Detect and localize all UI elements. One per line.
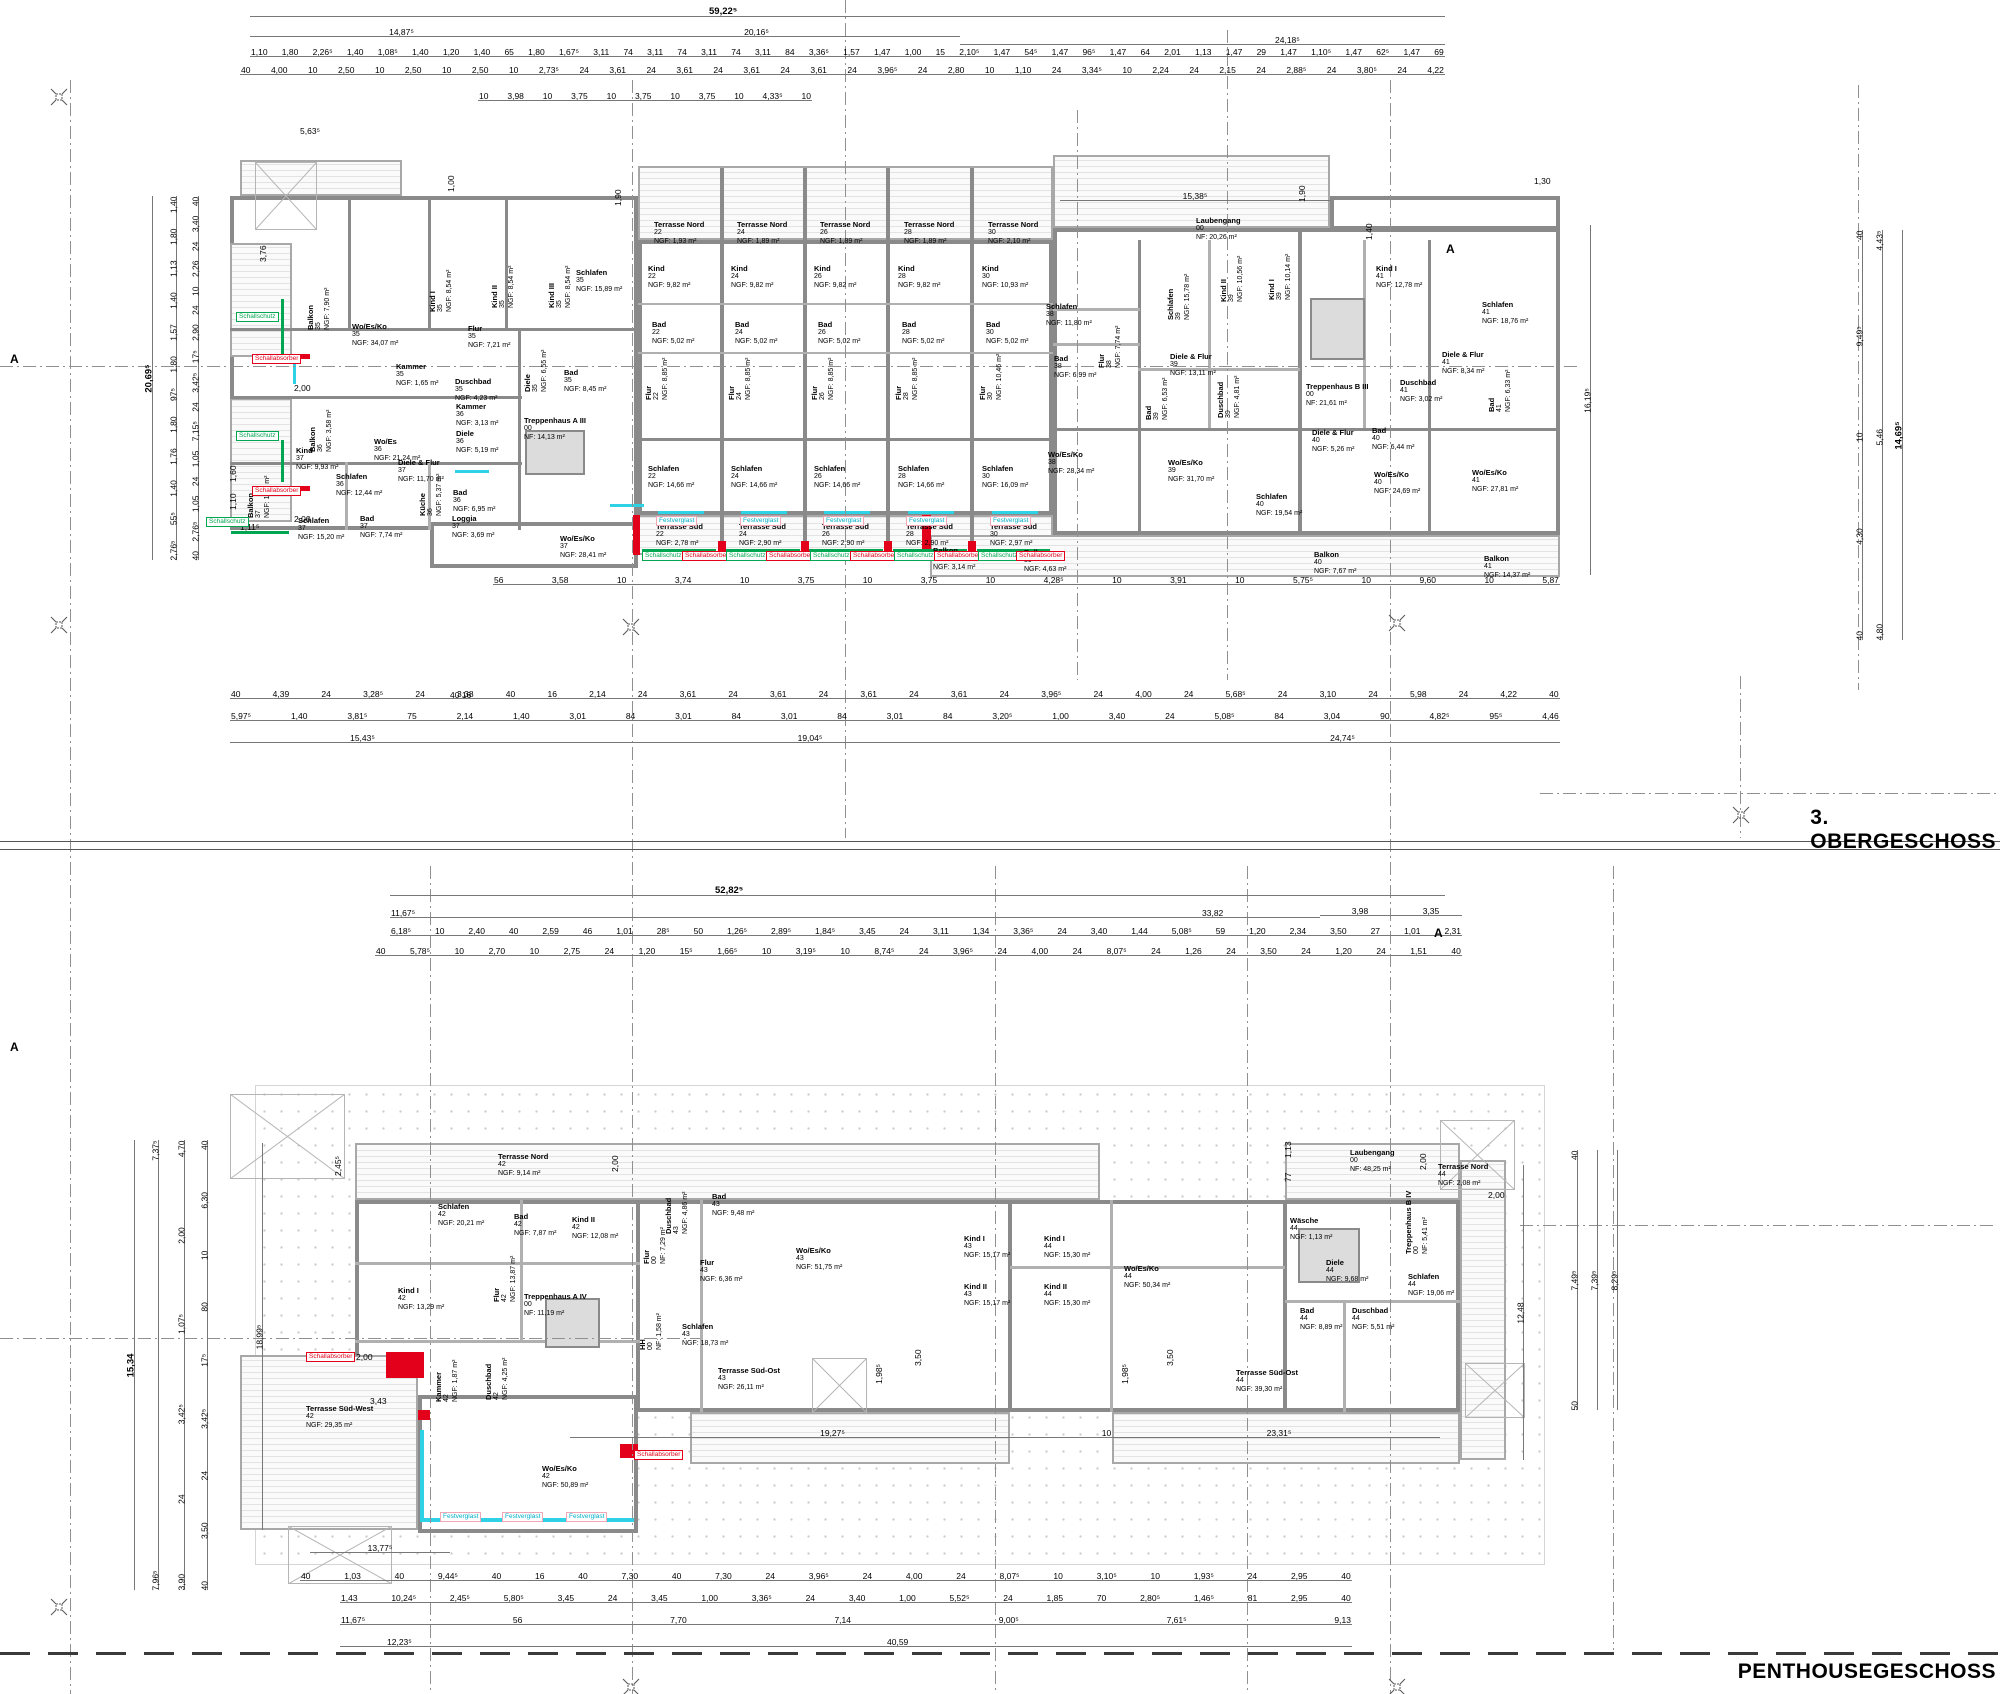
room-area: NGF: 13,87 m² — [510, 1256, 519, 1302]
unit-number: 22 — [648, 473, 694, 482]
dim-label: 2,00 — [1488, 1190, 1505, 1200]
crosshair-marker-icon — [50, 88, 68, 106]
room-name: Wo/Es/Ko — [1472, 468, 1518, 477]
unit-number: 24 — [731, 473, 777, 482]
room-area: NGF: 10,46 m² — [996, 354, 1005, 400]
room-area: NGF: 51,75 m² — [796, 1264, 842, 1273]
room-area: NGF: 7,67 m² — [1314, 568, 1356, 577]
unit-number: 43 — [796, 1255, 842, 1264]
dim-chain: 20,16⁵ — [553, 25, 960, 37]
festverglast-window-segment — [610, 504, 644, 507]
unit-number: 36 — [453, 497, 495, 506]
room-name: Kind II — [572, 1215, 618, 1224]
room-area: NGF: 2,10 m² — [988, 238, 1038, 247]
interior-wall — [886, 168, 890, 555]
room-name: Bad — [514, 1212, 556, 1221]
floor2-title: PENTHOUSEGESCHOSS — [1738, 1660, 1996, 1684]
unit-number: 40 — [1314, 559, 1356, 568]
room-name: Flur — [642, 1227, 651, 1264]
ref-line-horizontal — [0, 1338, 700, 1339]
room-label: Kind I39NGF: 10,14 m² — [1267, 254, 1294, 300]
room-label: Duschbad42NGF: 4,25 m² — [484, 1358, 511, 1400]
tag-schallschutz: Schallschutz — [236, 312, 279, 322]
tag-schallabsorber: Schallabsorber — [934, 551, 983, 561]
interior-wall — [700, 1200, 703, 1412]
room-name: Bad — [1487, 370, 1496, 412]
room-name: Wo/Es/Ko — [1124, 1264, 1170, 1273]
terrace-deck — [690, 1412, 1010, 1464]
stair-core — [1310, 298, 1365, 360]
room-area: NF: 5,41 m² — [1422, 1191, 1431, 1254]
room-area: NGF: 5,02 m² — [902, 338, 944, 347]
room-label: Schlafen37NGF: 15,20 m² — [298, 516, 344, 543]
tag-schallschutz: Schallschutz — [642, 551, 685, 561]
dim-chain: 3,98 — [1320, 904, 1400, 916]
room-name: Terrasse Süd-Ost — [1236, 1368, 1298, 1377]
tag-schallschutz: Schallschutz — [726, 551, 769, 561]
room-name: Terrasse Süd-West — [306, 1404, 373, 1413]
room-label: Schlafen28NGF: 14,66 m² — [898, 464, 944, 491]
unit-number: 24 — [739, 531, 786, 540]
room-name: Laubengang — [1350, 1148, 1395, 1157]
room-label: Treppenhaus A IV00NF: 11,19 m² — [524, 1292, 587, 1319]
room-area: NF: 20,26 m² — [1196, 234, 1241, 243]
dim-chain: 59,22⁵ — [250, 5, 1445, 17]
room-label: Kind I43NGF: 15,17 m² — [964, 1234, 1010, 1261]
room-area: NGF: 6,33 m² — [1505, 370, 1514, 412]
room-area: NGF: 3,13 m² — [456, 420, 498, 429]
room-label: Terrasse Süd-West42NGF: 29,35 m² — [306, 1404, 373, 1431]
room-area: NGF: 3,02 m² — [1400, 396, 1442, 405]
room-name: Diele & Flur — [1170, 352, 1216, 361]
room-label: HH00NF: 1,58 m² — [638, 1313, 665, 1350]
room-name: Terrasse Nord — [904, 220, 954, 229]
interior-wall — [348, 196, 351, 330]
tag-festverglast: Festverglast — [440, 1512, 481, 1522]
unit-number: 35 — [352, 331, 398, 340]
room-name: Diele — [523, 350, 532, 392]
room-name: Wo/Es/Ko — [1048, 450, 1094, 459]
room-name: Schlafen — [438, 1202, 484, 1211]
room-label: Schlafen38NGF: 11,80 m² — [1046, 302, 1092, 329]
dim-chain: 1,4310,24⁵2,45⁵5,80⁵3,45243,451,003,36⁵2… — [340, 1591, 1352, 1603]
room-name: Balkon — [1314, 550, 1356, 559]
room-label: Bad42NGF: 7,87 m² — [514, 1212, 556, 1239]
room-name: Flur — [810, 358, 819, 400]
dim-chain-vertical: 402,76⁵1,05241,057,15⁵243,42⁵17⁵2,902410… — [198, 196, 199, 560]
room-area: NGF: 11,80 m² — [1046, 320, 1092, 329]
room-label: Kind I41NGF: 12,78 m² — [1376, 264, 1422, 291]
room-name: Diele & Flur — [398, 458, 444, 467]
unit-number: 30 — [987, 354, 996, 400]
unit-number: 42 — [398, 1295, 444, 1304]
unit-number: 37 — [298, 525, 344, 534]
room-name: Kammer — [434, 1360, 443, 1402]
unit-number: 42 — [542, 1473, 588, 1482]
room-area: NGF: 8,54 m² — [565, 266, 574, 308]
room-name: Bad — [360, 514, 402, 523]
tag-schallschutz: Schallschutz — [206, 517, 249, 527]
dim-chain: 19,04⁵ — [495, 731, 1125, 743]
room-area: NGF: 16,09 m² — [982, 482, 1028, 491]
room-name: Kind II — [964, 1282, 1010, 1291]
unit-number: 44 — [1044, 1291, 1090, 1300]
room-name: Kind I — [428, 270, 437, 312]
room-area: NGF: 15,17 m² — [964, 1300, 1010, 1309]
dim-chain-vertical: 20,69⁵ — [152, 196, 153, 560]
room-label: Flur42NGF: 13,87 m² — [492, 1256, 519, 1302]
festverglast-window-segment — [741, 511, 787, 514]
room-name: Bad — [986, 320, 1028, 329]
room-label: Diele & Flur39NGF: 13,11 m² — [1170, 352, 1216, 379]
room-name: Treppenhaus B III — [1306, 382, 1369, 391]
room-label: Terrasse Süd-Ost44NGF: 39,30 m² — [1236, 1368, 1298, 1395]
room-area: NGF: 4,63 m² — [1024, 566, 1066, 575]
tag-schallabsorber: Schallabsorber — [682, 551, 731, 561]
unit-number: 44 — [1438, 1171, 1488, 1180]
room-label: Terrasse Nord44NGF: 2,08 m² — [1438, 1162, 1488, 1189]
room-name: Kind I — [1376, 264, 1422, 273]
room-area: NGF: 8,89 m² — [1300, 1324, 1342, 1333]
room-label: Balkon40NGF: 7,67 m² — [1314, 550, 1356, 577]
room-name: Bad — [1372, 426, 1414, 435]
room-name: Diele — [456, 429, 498, 438]
room-area: NGF: 8,85 m² — [912, 358, 921, 400]
room-area: NGF: 15,78 m² — [1184, 274, 1193, 320]
dim-label: 2,00 — [1418, 1153, 1428, 1170]
dim-chain: 6,18⁵102,40402,59461,0128⁵501,26⁵2,89⁵1,… — [390, 924, 1462, 936]
crosshair-marker-icon — [622, 618, 640, 636]
dim-chain: 23,31⁵ — [1118, 1426, 1440, 1438]
unit-number: 28 — [902, 329, 944, 338]
room-area: NGF: 14,37 m² — [1484, 572, 1530, 581]
dim-chain: 103,98103,75103,75103,75104,33⁵10 — [478, 89, 812, 101]
dim-chain: 11,67⁵567,707,149,00⁵7,61⁵9,13 — [340, 1613, 1352, 1625]
dim-chain-vertical: 4,805,464,43⁵ — [1882, 230, 1883, 640]
unit-number: 00 — [1413, 1191, 1422, 1254]
room-area: NGF: 50,34 m² — [1124, 1282, 1170, 1291]
unit-number: 41 — [1376, 273, 1422, 282]
room-label: Diele35NGF: 6,55 m² — [523, 350, 550, 392]
room-name: Bad — [712, 1192, 754, 1201]
sheet-divider-line — [0, 841, 2000, 842]
room-label: Balkon37NGF: 1,50 m² — [246, 476, 273, 518]
interior-wall — [1138, 240, 1141, 535]
room-name: Schlafen — [898, 464, 944, 473]
room-label: Bad22NGF: 5,02 m² — [652, 320, 694, 347]
room-label: Schlafen40NGF: 19,54 m² — [1256, 492, 1302, 519]
dim-label: 1,98⁵ — [874, 1364, 884, 1384]
room-area: NGF: 5,26 m² — [1312, 446, 1354, 455]
dim-label: 2,00 — [356, 1352, 373, 1362]
unit-number: 42 — [443, 1360, 452, 1402]
room-name: Schlafen — [298, 516, 344, 525]
dim-chain: 24,74⁵ — [1125, 731, 1560, 743]
unit-number: 30 — [988, 229, 1038, 238]
room-name: Kind — [648, 264, 690, 273]
room-label: Kind I42NGF: 13,29 m² — [398, 1286, 444, 1313]
dim-chain-vertical: 12,48 — [1523, 1165, 1524, 1460]
room-label: Terrasse Nord24NGF: 1,89 m² — [737, 220, 787, 247]
unit-number: 37 — [398, 467, 444, 476]
tag-schallabsorber: Schallabsorber — [1016, 551, 1065, 561]
unit-number: 35 — [396, 371, 438, 380]
unit-number: 26 — [818, 329, 860, 338]
room-name: Terrasse Nord — [820, 220, 870, 229]
room-area: NF: 11,19 m² — [524, 1310, 587, 1319]
unit-number: 38 — [1048, 459, 1094, 468]
unit-number: 35 — [437, 270, 446, 312]
room-name: Duschbad — [455, 377, 497, 386]
unit-number: 42 — [498, 1161, 548, 1170]
room-name: Diele & Flur — [1442, 350, 1484, 359]
room-area: NGF: 9,48 m² — [712, 1210, 754, 1219]
crosshair-marker-icon — [50, 1598, 68, 1616]
unit-number: 35 — [532, 350, 541, 392]
sheet-divider-line — [0, 849, 2000, 850]
dim-label: 1,13 — [1283, 1141, 1293, 1158]
unit-number: 42 — [572, 1224, 618, 1233]
section-marker-a: A — [10, 1040, 19, 1054]
room-label: Terrasse Nord30NGF: 2,10 m² — [988, 220, 1038, 247]
room-label: Balkon35NGF: 7,90 m² — [306, 288, 333, 330]
interior-wall — [518, 330, 521, 530]
room-label: Flur43NGF: 6,36 m² — [700, 1258, 742, 1285]
unit-number: 41 — [1484, 563, 1530, 572]
interior-wall — [1138, 368, 1300, 371]
room-label: Kind I44NGF: 15,30 m² — [1044, 1234, 1090, 1261]
room-name: Terrasse Nord — [988, 220, 1038, 229]
unit-number: 37 — [255, 476, 264, 518]
room-label: Kammer42NGF: 1,87 m² — [434, 1360, 461, 1402]
room-label: Bad40NGF: 6,44 m² — [1372, 426, 1414, 453]
room-name: Schlafen — [1166, 274, 1175, 320]
room-name: Schlafen — [682, 1322, 728, 1331]
room-name: Kammer — [396, 362, 438, 371]
room-area: NF: 14,13 m² — [524, 434, 586, 443]
unit-number: 36 — [456, 438, 498, 447]
sheet-divider-dashed — [0, 1652, 2000, 1655]
dim-chain: 10 — [1095, 1426, 1118, 1438]
room-area: NGF: 10,93 m² — [982, 282, 1028, 291]
room-area: NGF: 14,66 m² — [814, 482, 860, 491]
room-area: NGF: 1,93 m² — [654, 238, 704, 247]
unit-number: 42 — [514, 1221, 556, 1230]
crosshair-marker-icon — [1388, 614, 1406, 632]
room-name: Schlafen — [814, 464, 860, 473]
unit-number: 39 — [1168, 467, 1214, 476]
tag-schallabsorber: Schallabsorber — [634, 1450, 683, 1460]
room-area: NGF: 18,73 m² — [682, 1340, 728, 1349]
schallabsorber-wall-segment — [418, 1410, 430, 1420]
unit-number: 30 — [990, 531, 1037, 540]
room-name: Bad — [652, 320, 694, 329]
room-name: Wo/Es/Ko — [542, 1464, 588, 1473]
tag-schallschutz: Schallschutz — [978, 551, 1021, 561]
unit-number: 44 — [1408, 1281, 1454, 1290]
festverglast-window-segment — [992, 511, 1038, 514]
unit-number: 22 — [656, 531, 703, 540]
unit-number: 00 — [1306, 391, 1369, 400]
room-name: Kind II — [1044, 1282, 1090, 1291]
festverglast-window-segment — [293, 364, 296, 384]
crosshair-marker-icon — [622, 1678, 640, 1694]
room-label: Kind II39NGF: 10,56 m² — [1219, 256, 1246, 302]
room-name: Duschbad — [1216, 376, 1225, 418]
dim-chain-vertical: 404,30109,49⁵40 — [1862, 230, 1863, 640]
room-label: Flur26NGF: 8,85 m² — [810, 358, 837, 400]
room-area: NGF: 20,21 m² — [438, 1220, 484, 1229]
unit-number: 43 — [712, 1201, 754, 1210]
skylight-icon — [230, 1094, 345, 1179]
room-name: Schlafen — [1482, 300, 1528, 309]
unit-number: 42 — [493, 1358, 502, 1400]
section-marker-a: A — [10, 352, 19, 366]
room-label: Kind26NGF: 9,82 m² — [814, 264, 856, 291]
room-area: NGF: 8,34 m² — [1442, 368, 1484, 377]
room-name: Terrasse Süd-Ost — [718, 1366, 780, 1375]
dim-label: 1,90 — [1297, 185, 1307, 202]
room-label: Bad24NGF: 5,02 m² — [735, 320, 777, 347]
room-area: NGF: 15,30 m² — [1044, 1252, 1090, 1261]
festverglast-window-segment — [420, 1430, 424, 1522]
room-name: Schlafen — [576, 268, 622, 277]
unit-number: 28 — [906, 531, 953, 540]
ref-line-horizontal — [0, 366, 1580, 367]
unit-number: 37 — [360, 523, 402, 532]
interior-wall — [230, 328, 638, 331]
terrace-deck — [1112, 1412, 1460, 1464]
room-name: Bad — [902, 320, 944, 329]
room-name: Kind — [731, 264, 773, 273]
unit-number: 38 — [1054, 363, 1096, 372]
dim-chain: 404,00102,50102,50102,50102,73⁵243,61243… — [240, 63, 1445, 75]
dim-chain: 405,78⁵102,70102,75241,2015⁵1,66⁵103,19⁵… — [375, 944, 1462, 956]
room-name: Balkon — [1484, 554, 1530, 563]
unit-number: 35 — [556, 266, 565, 308]
dim-chain: 19,27⁵ — [570, 1426, 1095, 1438]
room-area: NGF: 1,87 m² — [452, 1360, 461, 1402]
crosshair-marker-icon — [50, 616, 68, 634]
room-label: Bad39NGF: 6,53 m² — [1144, 378, 1171, 420]
room-area: NGF: 9,82 m² — [648, 282, 690, 291]
room-name: Schlafen — [982, 464, 1028, 473]
room-area: NGF: 7,74 m² — [1115, 326, 1124, 368]
room-name: Laubengang — [1196, 216, 1241, 225]
room-name: Wo/Es/Ko — [796, 1246, 842, 1255]
room-label: Wo/Es/Ko35NGF: 34,07 m² — [352, 322, 398, 349]
interior-wall — [1110, 1200, 1113, 1412]
room-area: NF: 7,29 m² — [660, 1227, 669, 1264]
room-label: Bad36NGF: 6,95 m² — [453, 488, 495, 515]
room-label: Laubengang00NF: 20,26 m² — [1196, 216, 1241, 243]
room-name: Flur — [468, 324, 510, 333]
unit-number: 40 — [1312, 437, 1354, 446]
room-label: Flur35NGF: 7,21 m² — [468, 324, 510, 351]
room-area: NGF: 9,82 m² — [814, 282, 856, 291]
room-area: NGF: 1,89 m² — [737, 238, 787, 247]
room-area: NGF: 4,25 m² — [502, 1358, 511, 1400]
festverglast-window-segment — [455, 470, 489, 473]
room-label: Wo/Es/Ko37NGF: 28,41 m² — [560, 534, 606, 561]
room-area: NGF: 6,99 m² — [1054, 372, 1096, 381]
room-name: Wo/Es — [374, 437, 420, 446]
room-area: NGF: 28,34 m² — [1048, 468, 1094, 477]
unit-number: 00 — [651, 1227, 660, 1264]
room-label: Duschbad35NGF: 4,23 m² — [455, 377, 497, 404]
dim-chain-vertical: 16,19⁵ — [1590, 225, 1591, 575]
unit-number: 35 — [564, 377, 606, 386]
room-area: NGF: 8,85 m² — [745, 358, 754, 400]
room-area: NGF: 29,35 m² — [306, 1422, 373, 1431]
room-name: Wo/Es/Ko — [1374, 470, 1420, 479]
unit-number: 24 — [735, 329, 777, 338]
unit-number: 38 — [1106, 326, 1115, 368]
room-label: Terrasse Nord42NGF: 9,14 m² — [498, 1152, 548, 1179]
room-label: Flur30NGF: 10,46 m² — [978, 354, 1005, 400]
dim-label: 2,45⁵ — [333, 1156, 343, 1176]
dim-chain: 404,39243,28⁵243,3840162,14243,61243,612… — [230, 687, 1560, 699]
interior-wall — [1053, 428, 1560, 431]
room-name: Terrasse Nord — [498, 1152, 548, 1161]
room-label: Kind III35NGF: 8,54 m² — [547, 266, 574, 308]
room-area: NGF: 10,56 m² — [1237, 256, 1246, 302]
room-area: NGF: 15,89 m² — [576, 286, 622, 295]
room-area: NGF: 4,81 m² — [1234, 376, 1243, 418]
room-label: Schlafen42NGF: 20,21 m² — [438, 1202, 484, 1229]
dim-chain: 52,82⁵ — [390, 884, 1445, 896]
room-name: Terrasse Nord — [737, 220, 787, 229]
room-area: NGF: 7,90 m² — [324, 288, 333, 330]
room-label: Flur00NF: 7,29 m² — [642, 1227, 669, 1264]
room-area: NF: 21,61 m² — [1306, 400, 1369, 409]
ref-line-vertical — [70, 80, 71, 1694]
tag-schallschutz: Schallschutz — [236, 431, 279, 441]
room-label: Kind24NGF: 9,82 m² — [731, 264, 773, 291]
room-label: Schlafen39NGF: 15,78 m² — [1166, 274, 1193, 320]
unit-number: 39 — [1170, 361, 1216, 370]
room-label: Treppenhaus B IV00NF: 5,41 m² — [1404, 1191, 1431, 1254]
room-area: NGF: 5,02 m² — [735, 338, 777, 347]
dim-chain-vertical: 15,34 — [134, 1140, 135, 1590]
room-name: Diele & Flur — [1312, 428, 1354, 437]
room-area: NGF: 9,82 m² — [898, 282, 940, 291]
room-label: Wäsche44NGF: 1,13 m² — [1290, 1216, 1332, 1243]
room-label: Kind22NGF: 9,82 m² — [648, 264, 690, 291]
room-name: Treppenhaus A III — [524, 416, 586, 425]
dim-chain: 11,67⁵ — [390, 906, 615, 918]
room-name: Kind II — [490, 266, 499, 308]
room-label: Treppenhaus B III00NF: 21,61 m² — [1306, 382, 1369, 409]
dim-chain: 5,97⁵1,403,81⁵752,141,403,01843,01843,01… — [230, 709, 1560, 721]
unit-number: 41 — [1400, 387, 1442, 396]
unit-number: 43 — [673, 1192, 682, 1234]
unit-number: 00 — [524, 1301, 587, 1310]
room-area: NGF: 39,30 m² — [1236, 1386, 1298, 1395]
room-name: Flur — [644, 358, 653, 400]
festverglast-window-segment — [824, 511, 870, 514]
dim-label: 77 — [1283, 1173, 1293, 1182]
dim-label: 2,00 — [610, 1155, 620, 1172]
tag-festverglast: Festverglast — [906, 516, 947, 526]
festverglast-window-segment — [658, 511, 704, 514]
unit-number: 00 — [647, 1313, 656, 1350]
room-area: NGF: 3,69 m² — [452, 532, 494, 541]
room-name: Duschbad — [484, 1358, 493, 1400]
interior-wall — [1298, 228, 1302, 535]
dim-label: 3,50 — [913, 1349, 923, 1366]
interior-wall — [720, 168, 724, 555]
